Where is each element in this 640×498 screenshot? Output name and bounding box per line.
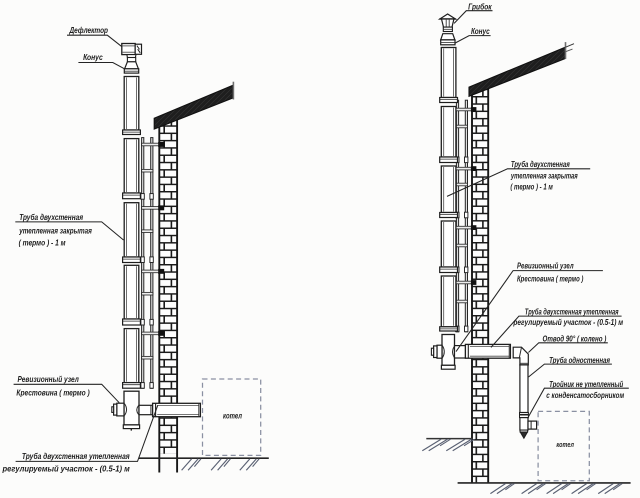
- svg-text:Крестовина ( термо ): Крестовина ( термо ): [16, 388, 89, 398]
- svg-text:с конденсатосборником: с конденсатосборником: [546, 390, 624, 400]
- svg-text:Отвод 90° ( колено ): Отвод 90° ( колено ): [543, 333, 607, 343]
- svg-text:Ревизионный узел: Ревизионный узел: [18, 374, 80, 384]
- svg-text:Крестовина ( термо ): Крестовина ( термо ): [517, 274, 584, 284]
- svg-text:Конус: Конус: [471, 26, 490, 36]
- svg-text:Труба двухстенная утепленная: Труба двухстенная утепленная: [525, 306, 619, 316]
- svg-text:утепленная закрытая: утепленная закрытая: [510, 170, 577, 180]
- svg-text:котел: котел: [223, 412, 242, 421]
- svg-text:Грибок: Грибок: [468, 1, 492, 11]
- svg-text:Труба одностенная: Труба одностенная: [549, 355, 610, 365]
- svg-text:Дефлектор: Дефлектор: [69, 25, 108, 35]
- svg-text:Труба двухстенная: Труба двухстенная: [19, 212, 83, 222]
- svg-text:утепленная закрытая: утепленная закрытая: [18, 225, 91, 235]
- svg-text:Конус: Конус: [83, 52, 103, 62]
- svg-text:Тройник не утепленный: Тройник не утепленный: [549, 379, 624, 389]
- svg-text:котел: котел: [556, 440, 574, 449]
- svg-text:регулируемый участок - (0.5-1: регулируемый участок - (0.5-1) м: [2, 464, 131, 474]
- svg-text:( термо ) - 1 м: ( термо ) - 1 м: [19, 237, 67, 247]
- svg-text:( термо ) - 1 м: ( термо ) - 1 м: [510, 182, 553, 192]
- svg-text:Труба двухстенная: Труба двухстенная: [511, 159, 570, 169]
- svg-text:Труба двухстенная утепленная: Труба двухстенная утепленная: [22, 451, 130, 461]
- svg-text:Ревизионный узел: Ревизионный узел: [517, 261, 574, 271]
- svg-text:регулируемый участок - (0.5-1: регулируемый участок - (0.5-1) м: [513, 317, 624, 327]
